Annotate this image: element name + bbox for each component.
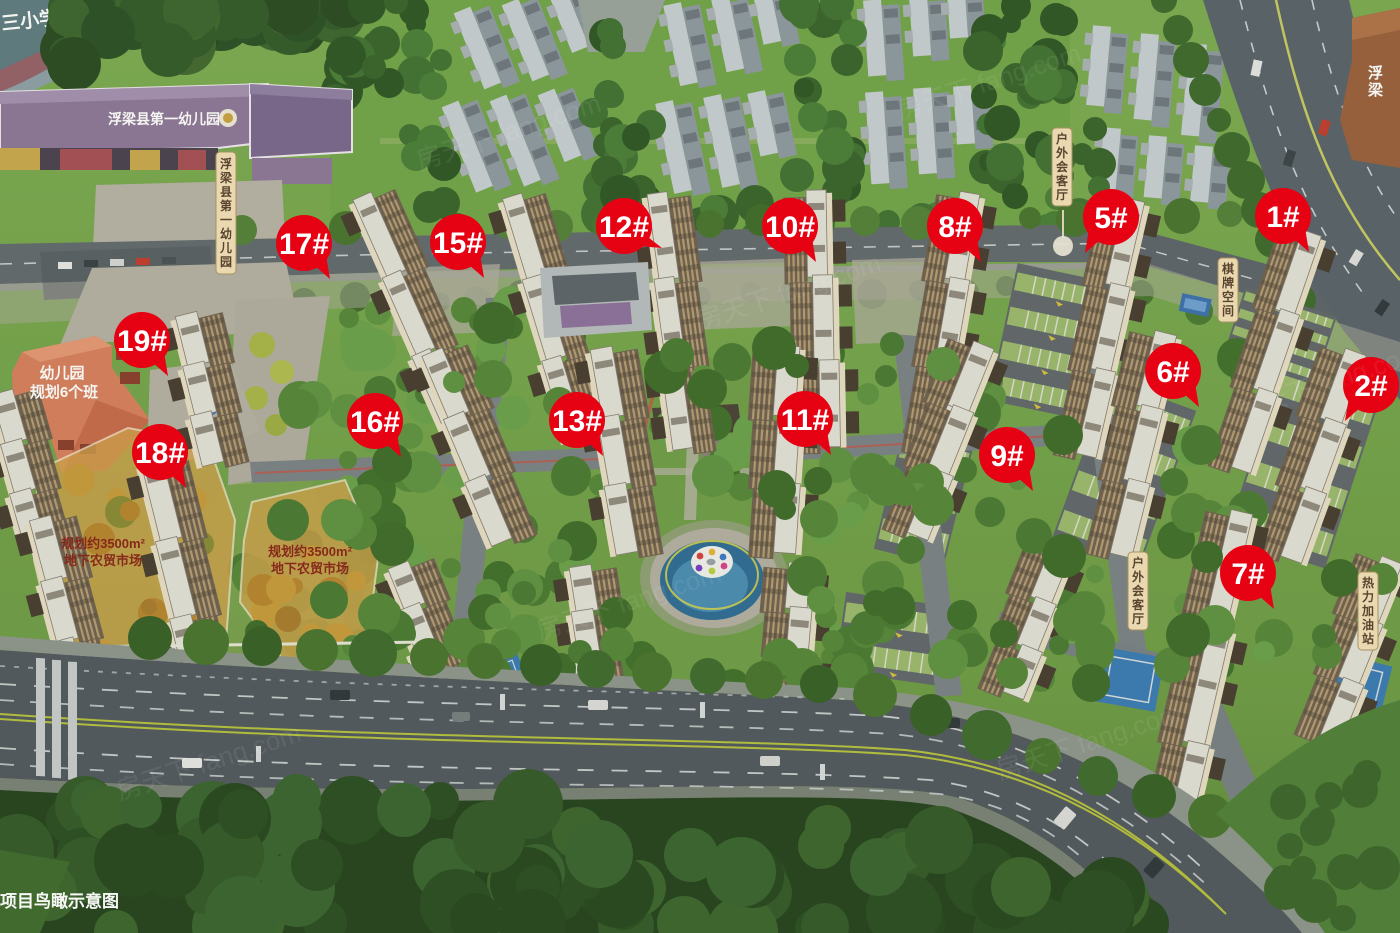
svg-text:棋牌空间: 棋牌空间 xyxy=(1222,261,1234,318)
svg-text:热力加油站: 热力加油站 xyxy=(1361,575,1374,646)
svg-text:7#: 7# xyxy=(1231,558,1265,591)
svg-text:18#: 18# xyxy=(135,437,185,470)
svg-text:户外会客厅: 户外会客厅 xyxy=(1131,555,1145,626)
svg-text:户外会客厅: 户外会客厅 xyxy=(1055,131,1069,202)
svg-text:10#: 10# xyxy=(765,211,815,244)
svg-text:9#: 9# xyxy=(990,440,1024,473)
svg-text:浮梁县第一幼儿园: 浮梁县第一幼儿园 xyxy=(219,156,232,269)
svg-text:8#: 8# xyxy=(938,211,972,244)
svg-text:17#: 17# xyxy=(279,228,329,261)
svg-text:15#: 15# xyxy=(433,227,483,260)
svg-text:5#: 5# xyxy=(1094,202,1128,235)
svg-text:12#: 12# xyxy=(599,211,649,244)
svg-text:13#: 13# xyxy=(552,405,602,438)
svg-text:11#: 11# xyxy=(781,404,830,437)
svg-text:项目鸟瞰示意图: 项目鸟瞰示意图 xyxy=(0,891,119,911)
svg-text:6#: 6# xyxy=(1156,356,1190,389)
svg-text:19#: 19# xyxy=(117,325,167,358)
svg-text:16#: 16# xyxy=(350,406,400,439)
svg-text:1#: 1# xyxy=(1266,201,1300,234)
